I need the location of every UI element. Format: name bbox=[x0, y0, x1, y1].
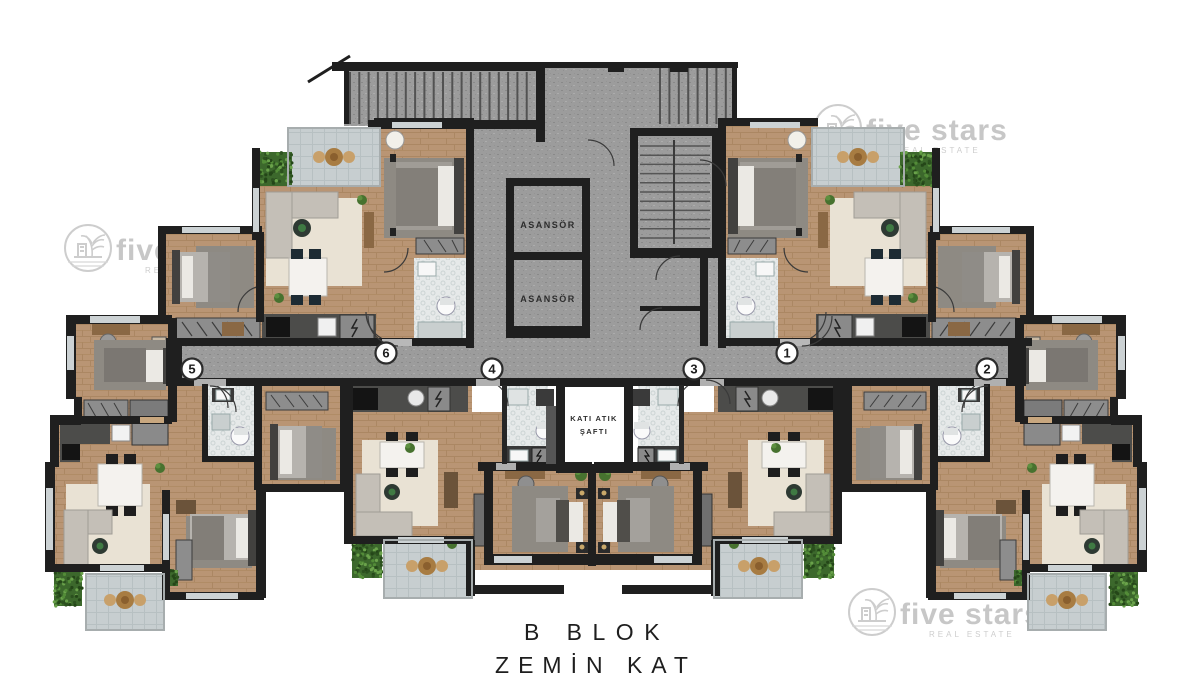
svg-text:REAL ESTATE: REAL ESTATE bbox=[929, 630, 1015, 639]
svg-text:3: 3 bbox=[690, 362, 697, 377]
svg-text:KATI ATIK: KATI ATIK bbox=[570, 414, 617, 423]
svg-text:ZEMİN KAT: ZEMİN KAT bbox=[495, 652, 697, 678]
svg-text:5: 5 bbox=[188, 362, 195, 377]
svg-text:2: 2 bbox=[983, 362, 990, 377]
svg-text:ŞAFTI: ŞAFTI bbox=[580, 427, 608, 436]
svg-text:ASANSÖR: ASANSÖR bbox=[520, 220, 576, 230]
svg-text:five stars: five stars bbox=[900, 598, 1042, 631]
svg-text:1: 1 bbox=[783, 346, 790, 361]
svg-text:4: 4 bbox=[488, 362, 496, 377]
svg-text:B BLOK: B BLOK bbox=[524, 619, 670, 645]
svg-text:ASANSÖR: ASANSÖR bbox=[520, 294, 576, 304]
svg-text:6: 6 bbox=[382, 346, 389, 361]
